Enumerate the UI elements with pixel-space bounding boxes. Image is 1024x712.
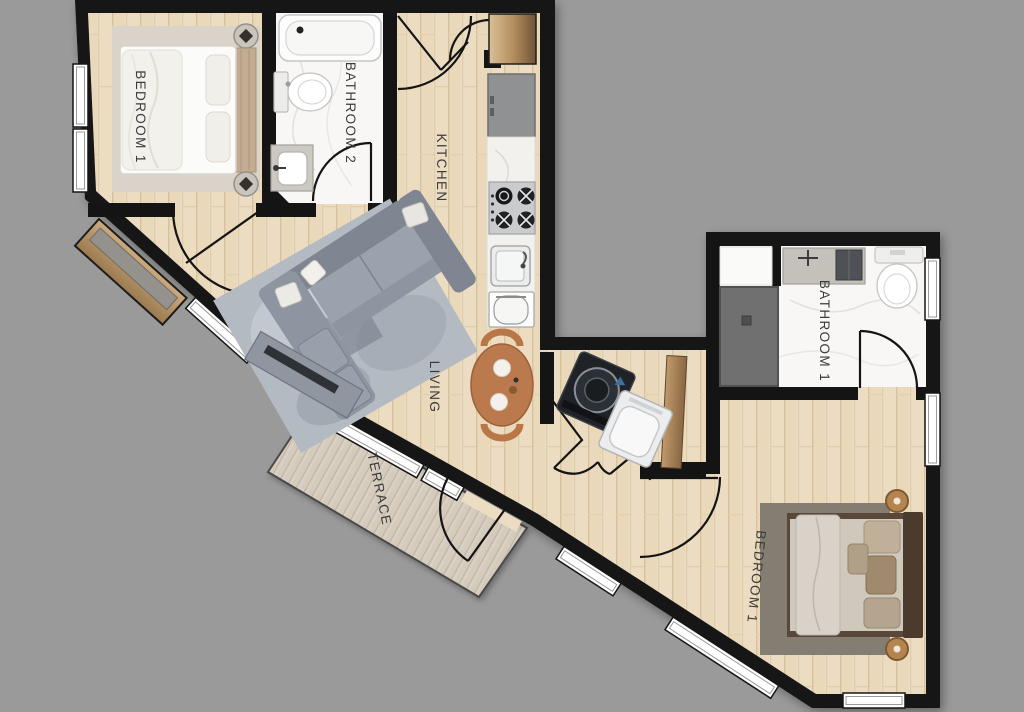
dishwasher <box>489 292 534 327</box>
pillow <box>864 521 900 553</box>
nightstand <box>234 24 258 48</box>
nightstand <box>886 490 908 512</box>
window <box>925 393 940 466</box>
room-kitchen <box>487 14 536 327</box>
nightstand <box>886 638 908 660</box>
window <box>73 129 88 192</box>
floor-plan-svg: BEDROOM 1 BATHROOM 2 KITCHEN LIVING TERR… <box>0 0 1024 712</box>
pillow <box>206 55 230 105</box>
kitchen-sink <box>491 246 530 286</box>
double-bed <box>790 515 903 635</box>
floor-plan-page: BEDROOM 1 BATHROOM 2 KITCHEN LIVING TERR… <box>0 0 1024 712</box>
toilet <box>274 72 332 112</box>
label-bathroom-1: BATHROOM 1 <box>817 280 832 382</box>
window <box>843 693 905 708</box>
label-living: LIVING <box>427 361 442 414</box>
walk-in-shower <box>720 287 778 386</box>
shower-bench <box>720 247 772 285</box>
window <box>925 258 940 320</box>
label-bathroom-2: BATHROOM 2 <box>343 62 358 164</box>
refrigerator <box>488 74 535 137</box>
label-kitchen: KITCHEN <box>434 133 449 202</box>
vanity-sink <box>271 145 313 191</box>
window <box>73 64 88 127</box>
room-bedroom-1-right <box>760 490 923 660</box>
bed-headboard <box>234 48 256 172</box>
label-bedroom-1-left: BEDROOM 1 <box>133 70 148 164</box>
nightstand <box>234 172 258 196</box>
pantry-closet <box>489 14 536 64</box>
pillow <box>864 598 900 628</box>
bathtub <box>279 15 381 61</box>
gas-stove <box>489 182 535 234</box>
pillow <box>866 556 896 594</box>
tub-faucet <box>297 27 304 34</box>
bathroom-vanity <box>783 248 865 284</box>
pillow <box>848 544 868 574</box>
pillow <box>206 112 230 162</box>
bed-headboard <box>903 512 923 638</box>
